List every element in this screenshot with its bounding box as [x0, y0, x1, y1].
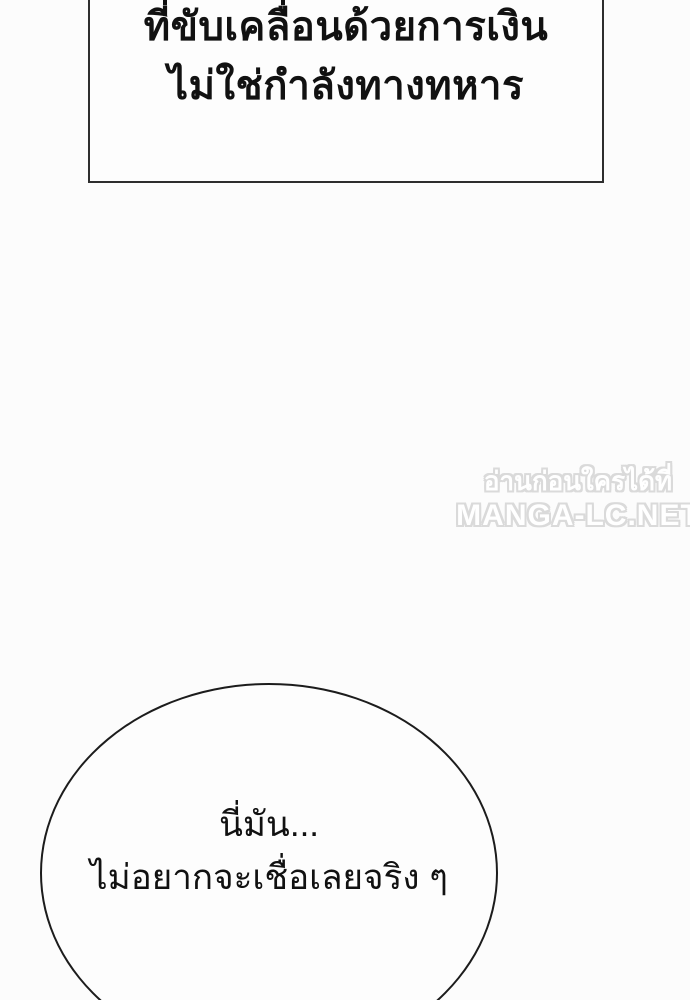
watermark-caption: อ่านก่อนใครได้ที่ — [450, 464, 690, 498]
watermark-site-name: MANGA-LC.NET — [450, 498, 690, 534]
bubble-line-2: ไม่อยากจะเชื่อเลยจริง ๆ — [40, 851, 498, 904]
site-watermark: อ่านก่อนใครได้ที่ MANGA-LC.NET — [450, 464, 690, 534]
narration-line-1: ที่ขับเคลื่อนด้วยการเงิน — [90, 0, 602, 57]
narration-box: ที่ขับเคลื่อนด้วยการเงิน ไม่ใช่กำลังทางท… — [88, 0, 604, 183]
speech-bubble-text: นี่มัน... ไม่อยากจะเชื่อเลยจริง ๆ — [40, 798, 498, 904]
bubble-line-1: นี่มัน... — [40, 798, 498, 851]
manga-page: ที่ขับเคลื่อนด้วยการเงิน ไม่ใช่กำลังทางท… — [0, 0, 690, 1000]
narration-line-2: ไม่ใช่กำลังทางทหาร — [90, 57, 602, 116]
